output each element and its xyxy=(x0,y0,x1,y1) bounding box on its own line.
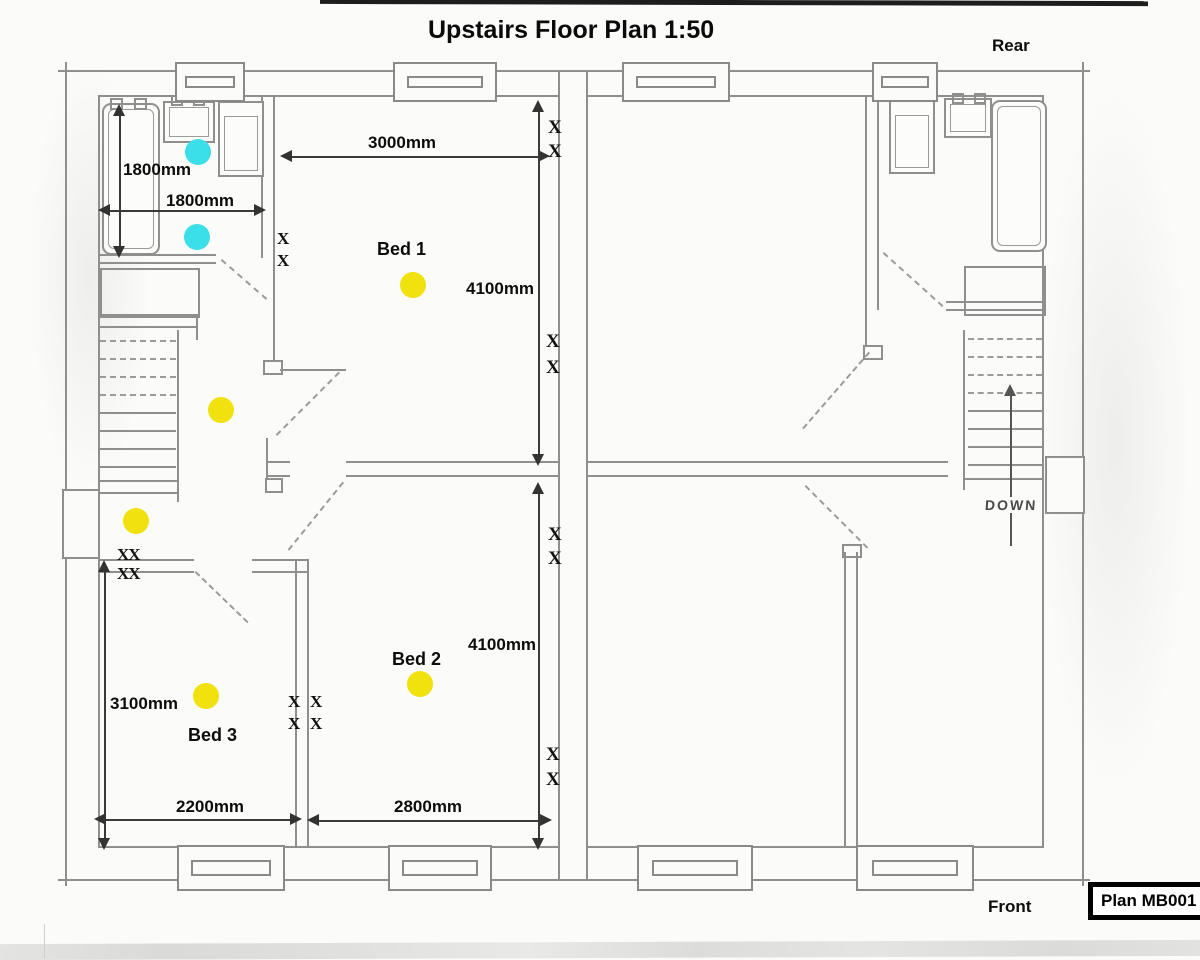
socket-x-mark: X xyxy=(277,230,288,247)
stair-tread xyxy=(968,338,1042,340)
down-label: DOWN xyxy=(981,497,1040,513)
arrowhead-left-icon xyxy=(98,204,110,216)
wall-light-dot xyxy=(185,139,211,165)
stair-tread xyxy=(100,448,176,450)
ceiling-light-dot xyxy=(193,683,219,709)
bed1-left-wall xyxy=(273,96,275,372)
wall-segment xyxy=(307,559,309,848)
dim-line xyxy=(313,820,546,822)
stair-stringer xyxy=(963,330,965,490)
socket-x-mark: X xyxy=(310,693,321,710)
room-label-bed2: Bed 2 xyxy=(392,649,441,670)
paper-smudge xyxy=(1040,90,1190,790)
window xyxy=(388,845,492,891)
wall-segment xyxy=(588,475,948,477)
stair-tread xyxy=(968,446,1042,448)
dim-label-bed2-depth: 4100mm xyxy=(468,635,536,655)
dim-line xyxy=(286,156,544,158)
dim-line xyxy=(538,488,540,844)
tap-icon xyxy=(974,93,986,104)
socket-x-mark: X xyxy=(310,715,321,732)
arrowhead-left-icon xyxy=(94,813,106,825)
dim-line xyxy=(100,819,296,821)
socket-x-mark: X xyxy=(288,715,299,732)
wall-light-dot xyxy=(184,224,210,250)
chimney-breast-right xyxy=(1045,456,1085,514)
dim-label-bed1-depth: 4100mm xyxy=(466,279,534,299)
door-swing-dashed xyxy=(288,482,344,551)
stair-landing-edge xyxy=(98,492,178,494)
stair-tread xyxy=(968,410,1042,412)
stair-tread xyxy=(100,412,176,414)
floor-plan-page: Upstairs Floor Plan 1:50 Rear Front Plan… xyxy=(0,0,1200,960)
wall-end-cap xyxy=(265,478,283,493)
window xyxy=(622,62,730,102)
door-swing-dashed xyxy=(883,252,944,307)
wall-end-cap xyxy=(263,360,283,375)
sink-basin xyxy=(944,98,992,138)
stair-tread xyxy=(968,356,1042,358)
socket-x-mark: X xyxy=(548,118,562,137)
socket-x-mark: X xyxy=(546,745,560,764)
window xyxy=(637,845,753,891)
wall-segment xyxy=(856,552,858,848)
dim-line xyxy=(104,566,106,844)
wall-segment xyxy=(268,461,290,463)
stair-tread xyxy=(968,374,1042,376)
stair-wall xyxy=(98,326,198,328)
wall-segment xyxy=(98,559,194,561)
socket-x-mark: XX xyxy=(117,546,140,563)
tap-icon xyxy=(134,98,147,110)
arrowhead-left-icon xyxy=(307,814,319,826)
ceiling-light-dot xyxy=(123,508,149,534)
dim-line xyxy=(119,110,121,252)
room-label-bed3: Bed 3 xyxy=(188,725,237,746)
scan-edge-artifact-bottom xyxy=(0,940,1200,960)
stair-tread xyxy=(100,340,176,342)
rear-label: Rear xyxy=(992,36,1030,56)
window xyxy=(872,62,938,102)
door-swing-dashed xyxy=(195,571,249,623)
socket-x-mark: X xyxy=(548,525,562,544)
wall-segment xyxy=(865,95,867,352)
arrowhead-down-icon xyxy=(532,454,544,466)
newel-post xyxy=(196,314,198,340)
bathtub xyxy=(991,100,1047,252)
socket-x-mark: X xyxy=(546,332,560,351)
toilet xyxy=(889,100,935,174)
socket-x-mark: X xyxy=(546,358,560,377)
dim-label-bed2-width: 2800mm xyxy=(394,797,462,817)
arrowhead-down-icon xyxy=(98,838,110,850)
ceiling-light-dot xyxy=(407,671,433,697)
door-swing-dashed xyxy=(221,259,268,300)
scan-edge-artifact-top xyxy=(320,0,1148,6)
wall-segment xyxy=(346,461,558,463)
wall-segment xyxy=(268,475,290,477)
socket-x-mark: XX xyxy=(117,565,140,582)
socket-x-mark: X xyxy=(548,142,562,161)
stair-stringer xyxy=(177,330,179,502)
socket-x-mark: X xyxy=(277,252,288,269)
stair-direction-arrow xyxy=(1010,390,1012,546)
wall-segment xyxy=(346,475,558,477)
ceiling-light-dot xyxy=(400,272,426,298)
arrowhead-up-icon xyxy=(113,104,125,116)
scan-crease xyxy=(44,924,45,958)
arrowhead-up-icon xyxy=(532,100,544,112)
chimney-breast-left xyxy=(62,489,100,559)
plan-reference-badge: Plan MB001 xyxy=(1088,882,1200,920)
toilet xyxy=(218,101,264,177)
wall-segment xyxy=(588,461,948,463)
dim-label-bed3-width: 2200mm xyxy=(176,797,244,817)
dim-label-bathroom-depth: 1800mm xyxy=(123,160,191,180)
tap-icon xyxy=(952,93,964,104)
arrowhead-down-icon xyxy=(113,246,125,258)
dim-label-bed1-width: 3000mm xyxy=(368,133,436,153)
arrowhead-down-icon xyxy=(532,838,544,850)
socket-x-mark: X xyxy=(288,693,299,710)
arrowhead-up-icon xyxy=(98,560,110,572)
ceiling-light-dot xyxy=(208,397,234,423)
stair-tread xyxy=(968,428,1042,430)
dim-label-bathroom-width: 1800mm xyxy=(166,191,234,211)
socket-x-mark: X xyxy=(548,549,562,568)
front-label: Front xyxy=(988,897,1031,917)
arrowhead-up-icon xyxy=(1004,384,1016,396)
arrowhead-up-icon xyxy=(532,482,544,494)
dim-line xyxy=(538,106,540,460)
wall-segment xyxy=(252,571,308,573)
wall-segment xyxy=(844,552,846,848)
door-leaf xyxy=(280,369,346,371)
stair-landing-edge xyxy=(98,480,178,482)
dim-label-bed3-depth: 3100mm xyxy=(110,694,178,714)
window xyxy=(393,62,497,102)
socket-x-mark: X xyxy=(546,770,560,789)
stair-tread xyxy=(100,430,176,432)
outer-wall xyxy=(65,62,67,886)
window xyxy=(856,845,974,891)
stair-landing-edge xyxy=(963,478,1043,480)
arrowhead-right-icon xyxy=(290,813,302,825)
bathroom-wall xyxy=(877,95,879,310)
sink-basin xyxy=(163,101,215,143)
wall-segment xyxy=(266,438,268,478)
stair-tread xyxy=(968,464,1042,466)
window xyxy=(177,845,285,891)
door-swing-dashed xyxy=(805,485,869,549)
room-label-bed1: Bed 1 xyxy=(377,239,426,260)
arrowhead-left-icon xyxy=(280,150,292,162)
stair-tread xyxy=(100,466,176,468)
door-swing-dashed xyxy=(276,372,340,436)
arrowhead-right-icon xyxy=(540,814,552,826)
door-swing-dashed xyxy=(802,352,870,430)
wall-segment xyxy=(98,571,194,573)
window xyxy=(175,62,245,102)
cupboard xyxy=(964,266,1046,316)
wall-segment xyxy=(252,559,308,561)
page-title: Upstairs Floor Plan 1:50 xyxy=(428,16,714,45)
stair-wall xyxy=(98,314,198,316)
arrowhead-right-icon xyxy=(254,204,266,216)
cupboard xyxy=(100,268,200,318)
stair-tread xyxy=(100,358,176,360)
stair-tread xyxy=(100,376,176,378)
bathroom-wall xyxy=(98,262,216,264)
stair-tread xyxy=(100,394,176,396)
